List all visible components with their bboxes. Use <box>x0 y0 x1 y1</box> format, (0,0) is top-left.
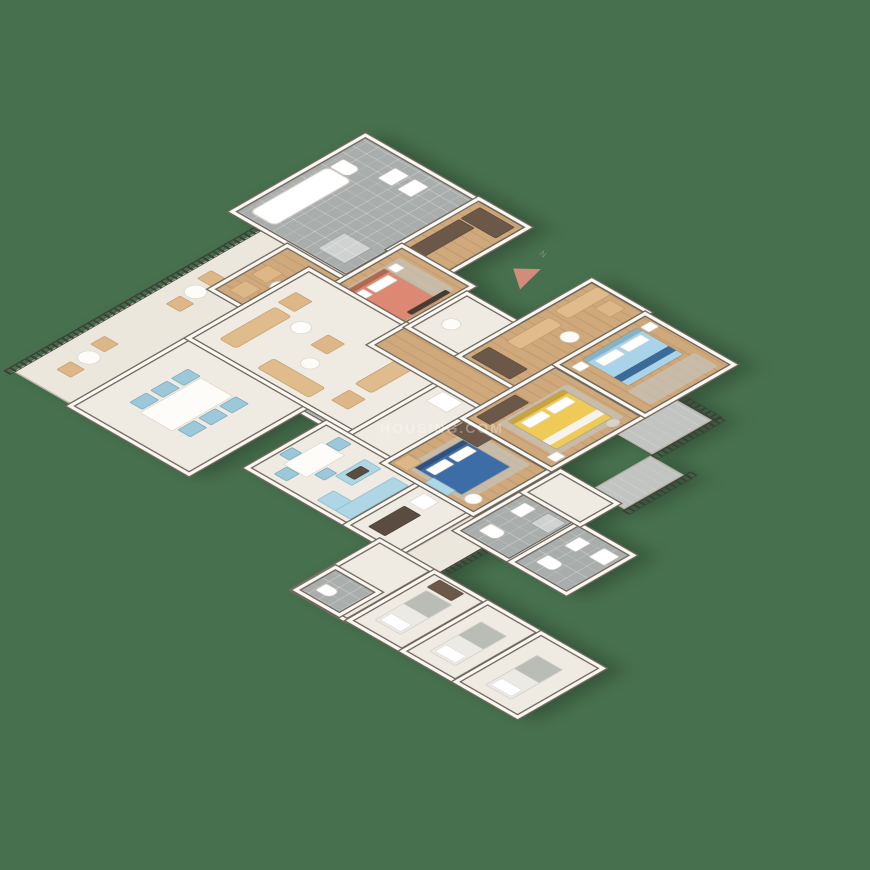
shower <box>530 513 566 534</box>
balcony-chair <box>90 336 119 352</box>
armchair <box>594 300 625 318</box>
toilet <box>315 583 341 598</box>
isometric-floorplan <box>0 100 870 725</box>
armchair <box>278 292 313 312</box>
single-bed <box>485 655 563 700</box>
utility-counter <box>368 506 421 537</box>
round-table <box>296 355 325 371</box>
pillow <box>380 613 413 632</box>
balcony-chair <box>56 361 85 377</box>
armchair <box>310 334 345 354</box>
fridge <box>426 391 464 413</box>
north-arrow-label: N <box>538 249 549 260</box>
round-table <box>285 319 316 337</box>
sink <box>564 537 591 553</box>
appliance <box>408 493 439 511</box>
toilet <box>535 555 565 572</box>
wardrobe <box>460 207 515 238</box>
bathtub <box>248 166 353 226</box>
shower <box>317 233 372 264</box>
pillow <box>490 678 523 697</box>
sink <box>509 502 536 518</box>
pillow <box>434 644 467 663</box>
blanket <box>514 656 562 683</box>
bathroom-sink <box>397 179 430 198</box>
washer <box>589 548 620 566</box>
round-table <box>555 329 584 345</box>
toilet <box>478 523 508 540</box>
blanket <box>458 622 506 649</box>
armchair <box>229 280 262 299</box>
north-arrow-icon <box>513 261 545 290</box>
console-table <box>437 316 466 332</box>
north-arrow: N <box>512 250 562 294</box>
armchair <box>331 390 366 410</box>
floorplan-canvas: HOUSING.COM N <box>0 0 870 870</box>
